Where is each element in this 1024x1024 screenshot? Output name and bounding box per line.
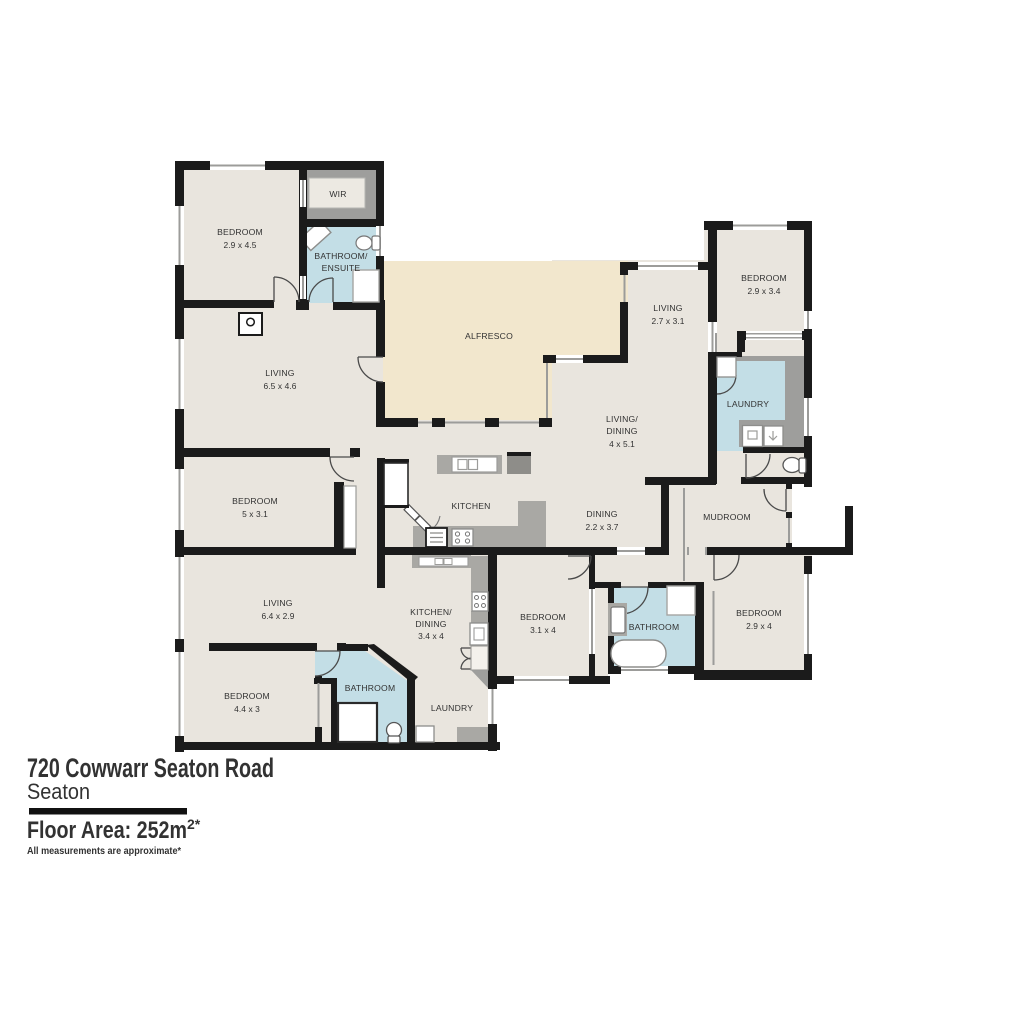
- svg-text:KITCHEN/: KITCHEN/: [410, 607, 452, 617]
- svg-text:4.4 x 3: 4.4 x 3: [234, 704, 260, 714]
- svg-text:LIVING/: LIVING/: [606, 414, 638, 424]
- svg-text:LIVING: LIVING: [653, 303, 682, 313]
- svg-text:2.9 x 4.5: 2.9 x 4.5: [223, 240, 256, 250]
- svg-text:BEDROOM: BEDROOM: [520, 612, 566, 622]
- svg-text:DINING: DINING: [606, 426, 637, 436]
- svg-text:BEDROOM: BEDROOM: [741, 273, 787, 283]
- svg-text:BATHROOM: BATHROOM: [629, 622, 680, 632]
- svg-text:6.4 x 2.9: 6.4 x 2.9: [261, 611, 294, 621]
- svg-text:2.9 x 4: 2.9 x 4: [746, 621, 772, 631]
- svg-text:LIVING: LIVING: [265, 368, 294, 378]
- svg-text:BATHROOM: BATHROOM: [345, 683, 396, 693]
- svg-text:Seaton: Seaton: [27, 779, 90, 804]
- svg-text:MUDROOM: MUDROOM: [703, 512, 751, 522]
- svg-text:ALFRESCO: ALFRESCO: [465, 331, 513, 341]
- svg-text:BEDROOM: BEDROOM: [736, 608, 782, 618]
- svg-text:KITCHEN: KITCHEN: [451, 501, 490, 511]
- svg-text:All measurements are approxima: All measurements are approximate*: [27, 845, 182, 857]
- svg-text:6.5 x 4.6: 6.5 x 4.6: [263, 381, 296, 391]
- svg-text:LAUNDRY: LAUNDRY: [431, 703, 473, 713]
- svg-text:2.7 x 3.1: 2.7 x 3.1: [651, 316, 684, 326]
- svg-text:LAUNDRY: LAUNDRY: [727, 399, 769, 409]
- svg-text:2.2 x 3.7: 2.2 x 3.7: [585, 522, 618, 532]
- svg-text:BATHROOM/: BATHROOM/: [314, 251, 368, 261]
- svg-text:3.1 x 4: 3.1 x 4: [530, 625, 556, 635]
- svg-text:Floor Area: 252m2*: Floor Area: 252m2*: [27, 816, 201, 844]
- svg-text:5 x 3.1: 5 x 3.1: [242, 509, 268, 519]
- svg-text:BEDROOM: BEDROOM: [232, 496, 278, 506]
- svg-text:BEDROOM: BEDROOM: [217, 227, 263, 237]
- svg-text:ENSUITE: ENSUITE: [322, 263, 361, 273]
- svg-text:DINING: DINING: [415, 619, 446, 629]
- svg-text:BEDROOM: BEDROOM: [224, 691, 270, 701]
- svg-text:WIR: WIR: [329, 189, 346, 199]
- svg-text:4 x 5.1: 4 x 5.1: [609, 439, 635, 449]
- svg-text:LIVING: LIVING: [263, 598, 292, 608]
- svg-text:DINING: DINING: [586, 509, 617, 519]
- svg-text:2.9 x 3.4: 2.9 x 3.4: [747, 286, 780, 296]
- svg-text:3.4 x 4: 3.4 x 4: [418, 631, 444, 641]
